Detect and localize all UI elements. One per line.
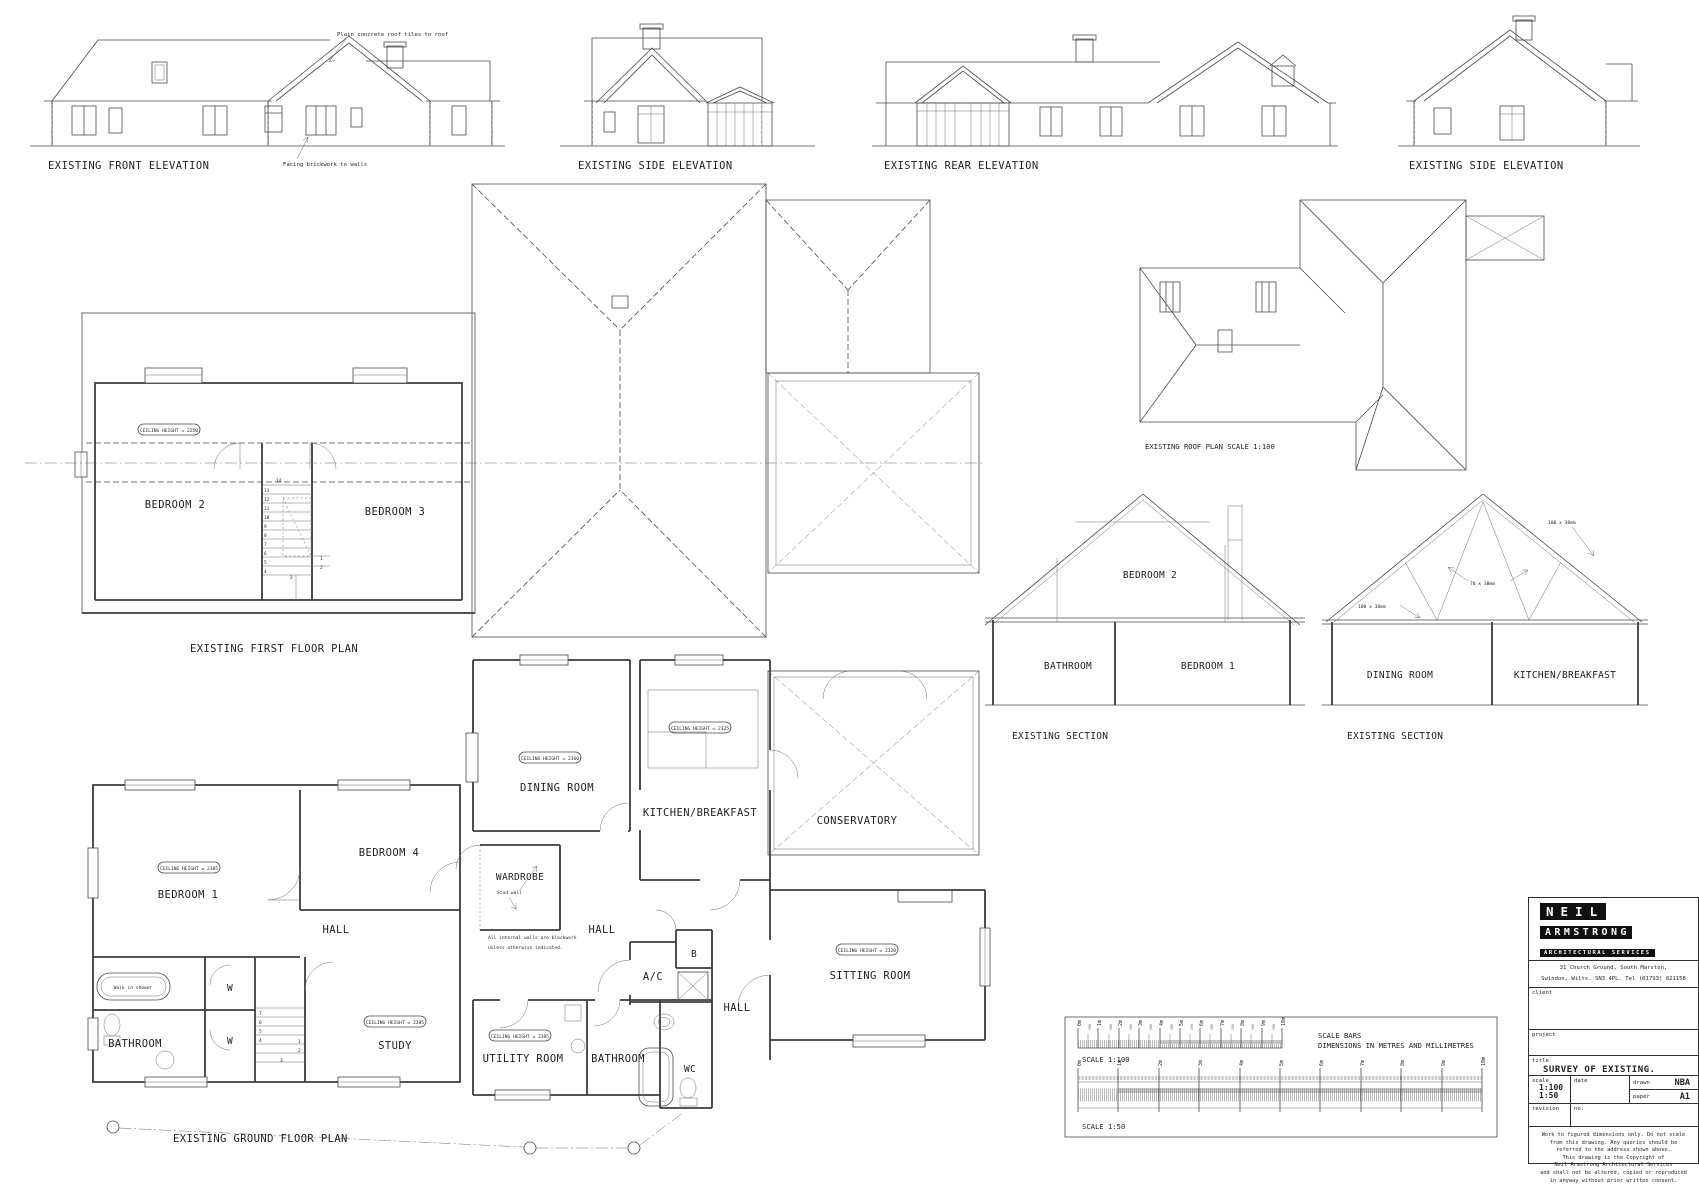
front-elevation-label: EXISTING FRONT ELEVATION <box>48 160 209 172</box>
tick-label: 1m <box>1117 1060 1123 1066</box>
tick-label: 5m <box>1279 1060 1285 1066</box>
disclaimer-line: in anyway without prior written consent. <box>1529 1178 1698 1186</box>
room-label-b: B <box>691 949 697 960</box>
disclaimer-line: Neil Armstrong Architectural Services <box>1529 1162 1698 1170</box>
date-label: date <box>1571 1076 1629 1084</box>
side-elevation-left: EXISTING SIDE ELEVATION <box>560 24 815 172</box>
tick-minor: 500 <box>1170 1024 1174 1030</box>
ceiling-height-note: CEILING HEIGHT = 2385 <box>491 1034 549 1040</box>
tick-minor: 500 <box>1190 1024 1194 1030</box>
room-label-study: STUDY <box>378 1040 412 1052</box>
firm-name-line1: NEIL <box>1540 903 1606 920</box>
room-label-bedroom2: BEDROOM 2 <box>145 499 206 511</box>
tick-label: 4m <box>1159 1020 1165 1026</box>
room-label-hall-right: HALL <box>724 1002 751 1014</box>
room-label-w: W <box>227 1036 233 1047</box>
note-blockwork: unless otherwise indicated. <box>488 945 563 951</box>
room-label-dining: DINING ROOM <box>520 782 594 794</box>
tick-label: 6m <box>1199 1020 1205 1026</box>
ceiling-height-note: CEILING HEIGHT = 2385 <box>366 1020 424 1026</box>
date-cell: date <box>1570 1076 1629 1103</box>
side-elevation-right-label: EXISTING SIDE ELEVATION <box>1409 160 1564 172</box>
room-label-hall-centre: HALL <box>589 924 616 936</box>
scale-value-2: 1:50 <box>1539 1092 1570 1100</box>
tick-label: 2m <box>1158 1060 1164 1066</box>
section-right-label: EXISTING SECTION <box>1347 731 1443 742</box>
section-room-kitchen: KITCHEN/BREAKFAST <box>1514 670 1616 681</box>
tick-label: 9m <box>1261 1020 1267 1026</box>
stair-number: 1 <box>320 556 323 562</box>
section-left: BEDROOM 2 BATHROOM BEDROOM 1 EXIST1NG SE… <box>985 494 1305 742</box>
firm-name-line3: ARCHITECTURAL SERVICES <box>1540 949 1655 957</box>
stair-number: 10 <box>264 515 270 521</box>
title-block: NEIL ARMSTRONG ARCHITECTURAL SERVICES 31… <box>1528 897 1699 1164</box>
ceiling-height-note: CEILING HEIGHT = 2320 <box>838 948 896 954</box>
room-label-bedroom3: BEDROOM 3 <box>365 506 426 518</box>
timber-note: 100 x 38mm <box>1358 604 1386 610</box>
tick-minor: 500 <box>1251 1024 1255 1030</box>
tick-label: 8m <box>1400 1060 1406 1066</box>
tick-minor: 500 <box>1129 1024 1133 1030</box>
stair-number: 2 <box>320 565 323 571</box>
room-label-wc: WC <box>684 1064 696 1075</box>
drawn-label: drawn <box>1630 1080 1650 1086</box>
tick-label: 6m <box>1319 1060 1325 1066</box>
tick-minor: 500 <box>1231 1024 1235 1030</box>
room-label-w: W <box>227 983 233 994</box>
drawn-row: drawn NBA <box>1630 1076 1698 1089</box>
tick-label: 2m <box>1118 1020 1124 1026</box>
paper-label: paper <box>1630 1094 1650 1100</box>
note-walk-in-shower: Walk in shower <box>114 985 153 991</box>
tick-label: 0m <box>1077 1060 1083 1066</box>
drawing-sheet: Plain concrete roof tiles to roof Facing… <box>0 0 1699 1200</box>
stair-number: 7 <box>259 1011 262 1017</box>
scale-bars-subheading: DIMENSIONS IN METRES AND MILLIMETRES <box>1318 1041 1474 1050</box>
section-room-bedroom2: BEDROOM 2 <box>1123 570 1177 581</box>
tick-label: 8m <box>1240 1020 1246 1026</box>
revision-row: revision no. <box>1529 1103 1698 1126</box>
front-elevation: Plain concrete roof tiles to roof Facing… <box>30 32 505 172</box>
tick-label: 3m <box>1138 1020 1144 1026</box>
stair-number: 6 <box>264 551 267 557</box>
ceiling-height-note: CEILING HEIGHT = 2360 <box>521 756 579 762</box>
title-label: title <box>1529 1056 1698 1064</box>
tick-label: 7m <box>1360 1060 1366 1066</box>
stair-number: 7 <box>264 542 267 548</box>
room-label-wardrobe: WARDROBE <box>496 872 544 883</box>
central-roof-block <box>25 184 982 637</box>
firm-address: 31 Church Ground, South Marston, Swindon… <box>1529 960 1698 987</box>
room-label-conservatory: CONSERVATORY <box>817 815 898 827</box>
drawing-title: SURVEY OF EXISTING. <box>1543 1065 1698 1075</box>
tick-label: 5m <box>1179 1020 1185 1026</box>
roof-plan-features <box>1160 282 1276 352</box>
ground-floor-plan-label: EXISTING GROUND FLOOR PLAN <box>173 1133 348 1145</box>
tick-minor: 500 <box>1109 1024 1113 1030</box>
room-label-hall-left: HALL <box>323 924 350 936</box>
section-room-dining: DINING ROOM <box>1367 670 1433 681</box>
roof-plan-label: EXISTING ROOF PLAN SCALE 1:100 <box>1145 442 1275 451</box>
room-label-bathroom-left: BATHROOM <box>108 1038 162 1050</box>
drawn-value: NBA <box>1675 1078 1690 1088</box>
tick-label: 4m <box>1239 1060 1245 1066</box>
disclaimer-line: Work to figured dimensions only. Do not … <box>1529 1132 1698 1140</box>
tick-minor: 500 <box>1088 1024 1092 1030</box>
side-elevation-left-label: EXISTING SIDE ELEVATION <box>578 160 733 172</box>
room-label-bedroom1: BEDROOM 1 <box>158 889 219 901</box>
address-line2: Swindon, Wilts. SN3 4PL. Tel (01793) 821… <box>1529 974 1698 985</box>
tick-label: 3m <box>1198 1060 1204 1066</box>
note-brickwork: Facing brickwork to walls <box>283 162 367 168</box>
client-field: client <box>1529 987 1698 1029</box>
first-floor-windows <box>75 368 407 477</box>
stair-number: 6 <box>259 1020 262 1026</box>
room-label-bedroom4: BEDROOM 4 <box>359 847 420 859</box>
tick-label: 7m <box>1220 1020 1226 1026</box>
tick-label: 0m <box>1077 1020 1083 1026</box>
tick-label: 10m <box>1281 1017 1287 1026</box>
room-label-utility: UTILITY ROOM <box>483 1053 564 1065</box>
section-right: 100 x 38mm 70 x 38mm 100 x 38mm DINING R… <box>1322 494 1648 742</box>
stair-number: 2 <box>298 1048 301 1054</box>
tick-label: 10m <box>1481 1057 1487 1066</box>
room-label-ac: A/C <box>643 971 663 983</box>
note-blockwork: All internal walls are blockwork <box>488 935 577 941</box>
note-roof-tiles: Plain concrete roof tiles to roof <box>337 32 448 38</box>
firm-logo: NEIL ARMSTRONG ARCHITECTURAL SERVICES <box>1529 898 1698 960</box>
drawing-canvas: Plain concrete roof tiles to roof Facing… <box>0 0 1699 1200</box>
disclaimer: Work to figured dimensions only. Do not … <box>1529 1126 1698 1185</box>
rear-elevation: EXISTING REAR ELEVATION <box>872 35 1338 172</box>
paper-row: paper A1 <box>1630 1089 1698 1103</box>
room-label-kitchen: KITCHEN/BREAKFAST <box>643 807 758 819</box>
stair-number: 4 <box>259 1038 262 1044</box>
first-floor-plan-label: EXISTING FIRST FLOOR PLAN <box>190 643 358 655</box>
disclaimer-line: and shall not be altered, copied or repr… <box>1529 1170 1698 1178</box>
tick-label: 9m <box>1441 1060 1447 1066</box>
section-left-label: EXIST1NG SECTION <box>1012 731 1108 742</box>
tick-minor: 500 <box>1149 1024 1153 1030</box>
address-line1: 31 Church Ground, South Marston, <box>1529 963 1698 974</box>
disclaimer-line: referred to the address shown above. <box>1529 1147 1698 1155</box>
revision-label: revision <box>1529 1104 1570 1112</box>
stair-number: 14 <box>276 478 282 484</box>
tick-minor: 500 <box>1272 1024 1276 1030</box>
timber-note: 70 x 38mm <box>1470 581 1495 587</box>
stair-number: 3 <box>280 1058 283 1064</box>
room-label-bathroom-centre: BATHROOM <box>591 1053 645 1065</box>
stair-number: 11 <box>264 506 270 512</box>
stair-number: 12 <box>264 497 270 503</box>
note-stud-wall: Stud wall <box>497 890 522 896</box>
rear-windows <box>1040 66 1294 136</box>
rear-elevation-label: EXISTING REAR ELEVATION <box>884 160 1039 172</box>
ceiling-height-note: CEILING HEIGHT = 2325 <box>671 726 729 732</box>
stair-number: 5 <box>264 560 267 566</box>
disclaimer-line: from this drawing. Any queries should be <box>1529 1140 1698 1148</box>
stair-number: 3 <box>290 575 293 581</box>
stair-number: 8 <box>264 533 267 539</box>
no-label: no. <box>1571 1104 1698 1112</box>
scale-bars: 0m 1m 2m 3m 4m 5m 6m 7m 8m 9m 10m 500 50… <box>1065 1017 1497 1137</box>
section-room-bedroom1: BEDROOM 1 <box>1181 661 1235 672</box>
stair-number: 1 <box>298 1039 301 1045</box>
drawn-paper-cell: drawn NBA paper A1 <box>1629 1076 1698 1103</box>
tick-label: 1m <box>1097 1020 1103 1026</box>
side-elevation-right: EXISTING SIDE ELEVATION <box>1398 16 1640 172</box>
scale-bars-heading: SCALE BARS <box>1318 1031 1361 1040</box>
room-label-sitting: SITTING ROOM <box>830 970 911 982</box>
timber-note: 100 x 38mm <box>1548 520 1576 526</box>
paper-value: A1 <box>1680 1092 1690 1102</box>
project-label: project <box>1529 1030 1698 1038</box>
stair-number: 13 <box>264 488 270 494</box>
roof-plan: EXISTING ROOF PLAN SCALE 1:100 <box>1140 200 1544 470</box>
scale-cell: scale 1:100 1:50 <box>1529 1076 1570 1103</box>
firm-name-line2: ARMSTRONG <box>1540 926 1632 939</box>
tick-minor: 500 <box>1210 1024 1214 1030</box>
ceiling-height-note: CEILING HEIGHT = 2385 <box>160 866 218 872</box>
title-field: title SURVEY OF EXISTING. <box>1529 1055 1698 1075</box>
stair-number: 4 <box>264 569 267 575</box>
first-floor-plan: 14 13 12 11 10 9 8 7 6 5 4 1 2 3 CEILING… <box>75 313 475 655</box>
stair-number: 9 <box>264 524 267 530</box>
project-field: project <box>1529 1029 1698 1055</box>
disclaimer-line: This drawing is the Copyright of <box>1529 1155 1698 1163</box>
client-label: client <box>1529 988 1698 996</box>
ceiling-height-note: CEILING HEIGHT = 2250 <box>140 428 198 434</box>
stair-number: 5 <box>259 1029 262 1035</box>
section-room-bathroom: BATHROOM <box>1044 661 1092 672</box>
scale-date-drawn-row: scale 1:100 1:50 date drawn NBA paper A1 <box>1529 1075 1698 1103</box>
scale-50-label: SCALE 1:50 <box>1082 1122 1125 1131</box>
front-windows <box>72 106 466 135</box>
ground-floor-plan: 7 6 5 4 1 2 3 CEILING HEIGHT = 2385 <box>88 655 990 1154</box>
